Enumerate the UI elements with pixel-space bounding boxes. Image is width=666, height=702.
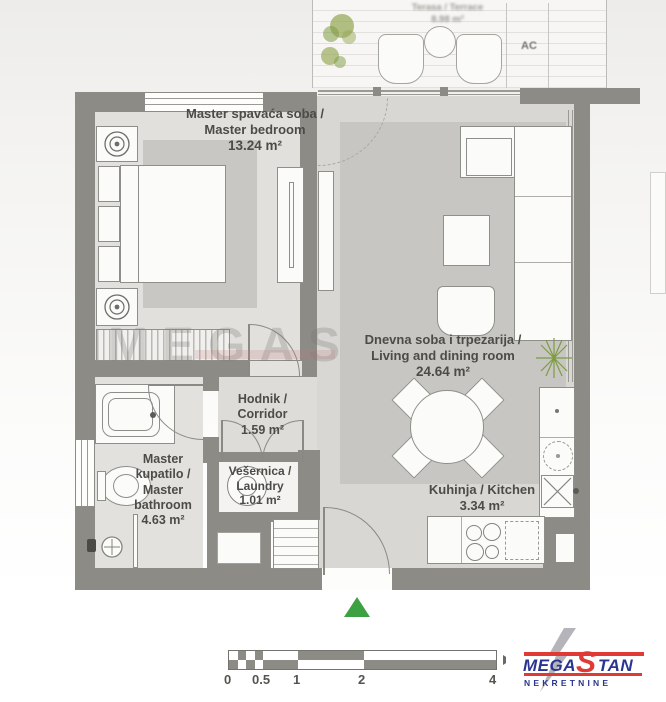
cabinet-knob (555, 409, 559, 413)
wall-top-right (520, 88, 590, 104)
wall-top-right-extension (590, 88, 640, 104)
ac-unit-label: AC (515, 40, 543, 53)
laundry-area: 1.01 m² (216, 493, 304, 508)
entrance-marker-triangle (344, 597, 370, 617)
terrace-divider-2 (548, 3, 549, 88)
shoe-shelf (273, 519, 319, 569)
kitchen-area: 3.34 m² (418, 498, 546, 514)
living-glass-wall-line (318, 94, 520, 95)
terrace-title: Terasa / Terrace (380, 2, 515, 14)
scale-cell (238, 660, 247, 669)
laundry-title-en: Laundry (216, 479, 304, 494)
appliance-center-dot (556, 454, 560, 458)
bedroom-window-line (145, 98, 263, 99)
scale-seg (298, 660, 364, 669)
bathroom-window (76, 440, 94, 506)
shower-head-icon (99, 534, 125, 560)
sofa-cushion-line (515, 262, 571, 263)
terrace-area: 8.98 m² (380, 14, 515, 26)
dishwasher-dashed (505, 521, 539, 560)
corridor-title-sr: Hodnik / (210, 392, 315, 407)
sink-tap (573, 488, 579, 494)
bed-pillow (98, 246, 120, 282)
bathroom-area: 4.63 m² (112, 513, 214, 528)
scale-cell (229, 651, 238, 660)
bed-duvet (138, 165, 226, 283)
scale-label-05: 0.5 (252, 672, 270, 687)
bedroom-title-sr: Master spavaća soba / (140, 106, 370, 122)
scale-bar (228, 650, 497, 670)
scale-cell (255, 660, 264, 669)
toilet-cistern (97, 471, 106, 501)
shower-mixer (87, 539, 96, 552)
bathroom-line1: Master (112, 452, 214, 467)
scale-seg (364, 651, 496, 660)
logo-bar-bottom (524, 673, 642, 676)
living-title-sr: Dnevna soba i trpezarija / (330, 332, 556, 348)
neighbour-terrace-railing (650, 172, 666, 294)
scale-cell (229, 660, 238, 669)
coffee-table (443, 215, 490, 266)
bathroom-line4: bathroom (112, 498, 214, 513)
laundry-title-sr: Vešernica / (216, 464, 304, 479)
wall-right (574, 88, 590, 590)
corridor-label: Hodnik / Corridor 1.59 m² (210, 392, 315, 438)
terrace-chair (378, 34, 424, 84)
bedroom-label: Master spavaća soba / Master bedroom 13.… (140, 106, 370, 154)
terrace-left-edge (312, 0, 313, 88)
glass-mullion (440, 87, 448, 96)
shaft-interior (217, 532, 261, 564)
scale-seg (298, 651, 364, 660)
bedroom-title-en: Master bedroom (140, 122, 370, 138)
kitchen-label: Kuhinja / Kitchen 3.34 m² (418, 482, 546, 514)
terrace-plant-icon (316, 10, 368, 70)
watermark-text: MEGAS (108, 318, 354, 373)
scale-cell (238, 651, 247, 660)
stove-burner (483, 523, 501, 541)
scale-label-4: 4 (489, 672, 496, 687)
laundry-label: Vešernica / Laundry 1.01 m² (216, 464, 304, 508)
sofa-right-arm (514, 126, 572, 341)
counter-divider (461, 517, 462, 563)
sofa-cushion (466, 138, 512, 176)
bathroom-window-line (81, 440, 82, 506)
terrace-chair (456, 34, 502, 84)
bathroom-window-line (87, 440, 88, 506)
bathroom-line2: kupatilo / (112, 467, 214, 482)
armchair (437, 286, 495, 336)
sink-x-icon (542, 476, 573, 507)
counter-divider (540, 437, 574, 438)
tv-cabinet (318, 171, 334, 291)
scale-label-0: 0 (224, 672, 231, 687)
scale-seg (364, 660, 496, 669)
corridor-title-en: Corridor (210, 407, 315, 422)
watermark-underline (195, 350, 335, 359)
glass-mullion (373, 87, 381, 96)
agency-logo: MEGA S TAN NEKRETNINE (506, 626, 664, 698)
floor-plan-page: Terasa / Terrace 8.98 m² AC (0, 0, 666, 702)
living-glass-wall (318, 90, 520, 92)
washbasin-bowl (108, 398, 153, 431)
bed-pillow (98, 206, 120, 242)
bed-pillow (98, 166, 120, 202)
wardrobe-handle (289, 182, 294, 268)
wall-left (75, 92, 95, 590)
stove-burner (466, 525, 482, 541)
living-label: Dnevna soba i trpezarija / Living and di… (330, 332, 556, 380)
bathroom-line3: Master (112, 483, 214, 498)
bedroom-area: 13.24 m² (140, 138, 370, 154)
dining-table (410, 390, 484, 464)
wall-bottom (75, 568, 547, 590)
scale-seg (263, 651, 298, 660)
bedroom-window-line (145, 104, 263, 105)
kitchen-title: Kuhinja / Kitchen (418, 482, 546, 498)
corridor-area: 1.59 m² (210, 423, 315, 438)
terrace-label: Terasa / Terrace 8.98 m² (380, 2, 515, 25)
logo-subtitle: NEKRETNINE (524, 678, 611, 688)
scale-cell (255, 651, 264, 660)
stove-burner (466, 543, 484, 561)
scale-cell (246, 660, 255, 669)
speaker-icon (101, 128, 133, 160)
wall-bathroom-corridor-stub (203, 377, 219, 391)
scale-label-2: 2 (358, 672, 365, 687)
stove-burner (485, 545, 499, 559)
scale-cell (246, 651, 255, 660)
bed-headboard-fold (120, 165, 140, 283)
bathroom-label: Master kupatilo / Master bathroom 4.63 m… (112, 452, 214, 528)
terrace-table (424, 26, 456, 58)
sofa-cushion-line (515, 196, 571, 197)
scale-seg (263, 660, 298, 669)
living-title-en: Living and dining room (330, 348, 556, 364)
scale-label-1: 1 (293, 672, 300, 687)
terrace-right-edge (606, 0, 607, 88)
living-area: 24.64 m² (330, 364, 556, 380)
